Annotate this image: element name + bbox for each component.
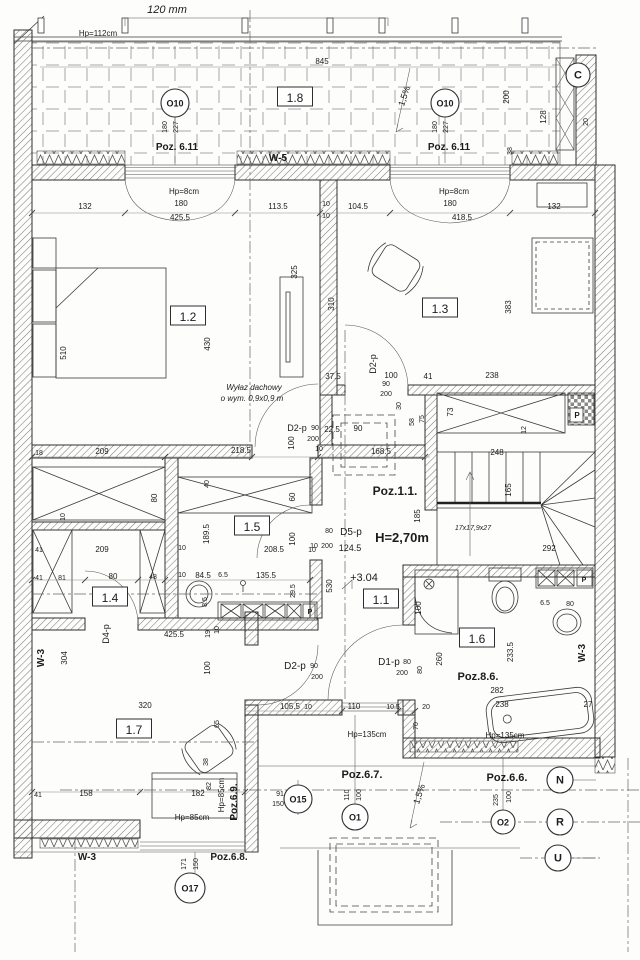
dimension-text: Poz.8.6. bbox=[458, 671, 499, 683]
dimension-text: 200 bbox=[311, 674, 323, 681]
dimension-text: W-3 bbox=[577, 644, 588, 663]
dimension-text: 150 bbox=[193, 858, 200, 870]
bed-room-1-2 bbox=[56, 268, 166, 378]
dimension-text: 845 bbox=[315, 57, 329, 66]
chair-room-1-7 bbox=[177, 719, 240, 778]
dimension-text: P bbox=[574, 411, 580, 420]
dimension-text: 20 bbox=[422, 704, 430, 711]
dimension-text: 100 bbox=[288, 532, 297, 546]
dimension-text: 90 bbox=[382, 381, 390, 388]
dimension-text: 29.5 bbox=[290, 584, 297, 598]
dimension-text: 100 bbox=[384, 371, 398, 380]
dimension-text: P bbox=[582, 577, 587, 584]
dimension-text: H=2,70m bbox=[375, 530, 429, 545]
dimension-text: 27 bbox=[584, 700, 593, 709]
axis-mark-n-label: N bbox=[556, 775, 564, 787]
dimension-text: 100 bbox=[356, 789, 363, 801]
dimension-text: 41 bbox=[35, 575, 43, 582]
dimension-text: 180 bbox=[443, 199, 457, 208]
dimension-text: 19 bbox=[205, 630, 212, 638]
dimension-text: 208.5 bbox=[264, 545, 285, 554]
dimension-text: Poz.6.9. bbox=[229, 783, 240, 820]
dimension-text: Poz.6.6. bbox=[487, 772, 528, 784]
dimension-text: Hp=8cm bbox=[439, 187, 469, 196]
dimension-text: 135.5 bbox=[256, 571, 277, 580]
dimension-text: 310 bbox=[327, 297, 336, 311]
dimension-text: 100 bbox=[203, 661, 212, 675]
dimension-text: 81 bbox=[58, 575, 66, 582]
window-mark-o10-left-label: O10 bbox=[166, 99, 183, 109]
dimension-text: 80 bbox=[325, 528, 333, 535]
dimension-text: 304 bbox=[60, 651, 69, 665]
dimension-text: 105.5 bbox=[280, 702, 301, 711]
dimension-text: W-5 bbox=[269, 153, 288, 164]
dimension-text: 110 bbox=[348, 702, 361, 711]
dimension-text: 17x17,9x27 bbox=[455, 525, 492, 532]
dimension-text: 180 bbox=[174, 199, 188, 208]
dimension-text: 1,5% bbox=[411, 783, 427, 806]
dimension-text: W-3 bbox=[78, 852, 97, 863]
dimension-text: 189.5 bbox=[202, 523, 211, 544]
dimension-text: 10.5 bbox=[386, 704, 400, 711]
dimension-text: 58 bbox=[409, 418, 416, 426]
dimension-text: 325 bbox=[290, 265, 299, 279]
dimension-text: 75 bbox=[419, 415, 426, 423]
dimension-text: 12 bbox=[521, 426, 528, 434]
dimension-text: 425.5 bbox=[164, 630, 185, 639]
room-number-1.8: 1.8 bbox=[287, 91, 304, 105]
dimension-text: D2-p bbox=[284, 661, 306, 672]
dimension-text: 124.5 bbox=[339, 543, 362, 553]
dimension-text: 132 bbox=[547, 202, 561, 211]
dimension-text: P bbox=[308, 609, 313, 616]
dimension-text: 80 bbox=[417, 666, 424, 674]
dimension-text: 40 bbox=[204, 480, 211, 488]
dimension-text: Hp=112cm bbox=[79, 29, 118, 38]
axis-mark-r-label: R bbox=[556, 817, 564, 829]
dimension-text: 100 bbox=[287, 436, 296, 450]
dimension-text: 10 bbox=[178, 572, 186, 579]
dimension-text: 510 bbox=[59, 346, 68, 360]
dimension-text: 320 bbox=[138, 701, 152, 710]
dimension-text: Hp=85cm bbox=[175, 813, 210, 822]
room-number-1.5: 1.5 bbox=[244, 520, 261, 534]
dimension-text: 282 bbox=[490, 686, 504, 695]
dimension-text: 10 bbox=[178, 545, 186, 552]
bed-room-1-3 bbox=[532, 238, 593, 313]
dimension-text: 6.5 bbox=[218, 572, 228, 579]
dimension-text: 180 bbox=[162, 121, 169, 133]
dimension-text: D4-p bbox=[101, 624, 111, 644]
dimension-text: 10 bbox=[322, 201, 330, 208]
dimension-text: 185 bbox=[413, 509, 422, 523]
dimension-text: 100 bbox=[414, 601, 423, 615]
dimension-text: Hp=135cm bbox=[348, 730, 387, 739]
dimension-text: D2-p bbox=[287, 423, 307, 433]
staircase bbox=[437, 393, 595, 565]
dimension-text: 18 bbox=[35, 450, 43, 457]
dimension-text: +3.04 bbox=[350, 572, 378, 584]
dimension-text: Hp=8cm bbox=[169, 187, 199, 196]
dimension-text: 200 bbox=[380, 391, 392, 398]
dimension-text: 22.5 bbox=[324, 425, 340, 434]
dimension-text: Poz.1.1. bbox=[373, 484, 418, 498]
door-arc-room-1-7 bbox=[258, 645, 318, 705]
dimension-text: 171 bbox=[181, 858, 188, 870]
chair-room-1-3 bbox=[364, 239, 427, 297]
dimension-text: 100 bbox=[506, 791, 513, 803]
dimension-text: 248 bbox=[490, 448, 504, 457]
dimension-text: 90 bbox=[310, 663, 318, 670]
dimension-text: 70 bbox=[413, 722, 420, 730]
dimension-text: 80 bbox=[109, 572, 118, 581]
dimension-text: 73 bbox=[446, 407, 455, 416]
room-number-1.6: 1.6 bbox=[469, 632, 486, 646]
dimension-text: Poz.6.7. bbox=[342, 769, 383, 781]
dimension-text: 209 bbox=[95, 545, 109, 554]
dimension-text: Wyłaz dachowy bbox=[226, 383, 283, 392]
dimension-text: 8.5 bbox=[202, 597, 209, 607]
window-mark-o1-label: O1 bbox=[349, 813, 361, 823]
dimension-text: 132 bbox=[78, 202, 92, 211]
dimension-text: 227 bbox=[443, 121, 450, 133]
dimension-text: 65 bbox=[214, 720, 221, 728]
dimension-text: 182 bbox=[191, 789, 205, 798]
floor-plan: 120 mmHp=112cm8451,5%1802271802272001282… bbox=[0, 0, 640, 960]
dimension-text: o wym. 0,9x0,9 m bbox=[221, 394, 284, 403]
dimension-text: D5-p bbox=[340, 527, 362, 538]
dimension-text: 158 bbox=[79, 789, 93, 798]
dimension-text: 41 bbox=[34, 792, 42, 799]
room-number-1.4: 1.4 bbox=[102, 591, 119, 605]
dimension-text: 128 bbox=[539, 110, 548, 124]
dimension-text: 10 bbox=[214, 626, 221, 634]
dimension-text: Poz. 6.11 bbox=[428, 142, 471, 153]
dimension-text: Hp=135cm bbox=[486, 731, 525, 740]
dimension-text: Poz. 6.11 bbox=[156, 142, 199, 153]
dimension-text: 60 bbox=[288, 492, 297, 501]
laundry-counter bbox=[218, 602, 317, 620]
dimension-text: 233.5 bbox=[506, 641, 515, 662]
dimension-text: 91 bbox=[276, 791, 284, 798]
dimension-text: Poz.6.8. bbox=[210, 852, 247, 863]
dimension-text: 200 bbox=[307, 436, 319, 443]
dimension-text: 120 mm bbox=[147, 4, 187, 16]
dimension-text: 430 bbox=[203, 337, 212, 351]
dimension-text: 10 bbox=[315, 446, 323, 453]
dimension-text: 82 bbox=[206, 782, 213, 790]
dimension-text: 110 bbox=[344, 789, 351, 800]
dimension-text: W-3 bbox=[36, 649, 47, 668]
dimension-text: 41 bbox=[424, 372, 433, 381]
room-number-1.3: 1.3 bbox=[432, 302, 449, 316]
window-mark-o2-label: O2 bbox=[497, 818, 509, 828]
dimension-text: D1-p bbox=[378, 657, 400, 668]
dimension-text: 10 bbox=[322, 213, 330, 220]
dimension-text: 84.5 bbox=[195, 571, 211, 580]
floor-plan-canvas: 120 mmHp=112cm8451,5%1802271802272001282… bbox=[0, 0, 640, 960]
dimension-text: 227 bbox=[173, 121, 180, 133]
dimension-text: 6.5 bbox=[540, 600, 550, 607]
dimension-text: 104.5 bbox=[348, 202, 369, 211]
dimension-text: 238 bbox=[485, 371, 499, 380]
dimension-text: 38 bbox=[203, 758, 210, 766]
top-dim-bracket bbox=[125, 18, 388, 26]
dimension-text: 80 bbox=[566, 601, 574, 608]
dimension-text: 20 bbox=[583, 118, 590, 126]
dimension-text: 200 bbox=[502, 90, 511, 104]
dimension-text: 383 bbox=[504, 300, 513, 314]
dimension-text: 30 bbox=[396, 402, 403, 410]
room-number-1.7: 1.7 bbox=[126, 723, 143, 737]
door-swings bbox=[85, 325, 408, 705]
dimension-text: 200 bbox=[321, 543, 333, 550]
dimension-text: 41 bbox=[35, 547, 43, 554]
dimension-text: 200 bbox=[396, 670, 408, 677]
dimension-text: 238 bbox=[495, 700, 509, 709]
dimension-text: 150 bbox=[272, 801, 284, 808]
room-number-1.2: 1.2 bbox=[180, 310, 197, 324]
dimension-text: D2-p bbox=[368, 354, 378, 374]
dimension-text: 90 bbox=[311, 425, 319, 432]
window-mark-o15-label: O15 bbox=[289, 795, 306, 805]
dimension-text: 10 bbox=[304, 704, 312, 711]
dimension-text: 168.5 bbox=[371, 447, 392, 456]
dimension-text: 10 bbox=[310, 543, 318, 550]
dimension-text: 425.5 bbox=[170, 213, 191, 222]
dimension-text: 292 bbox=[542, 544, 556, 553]
window-mark-o10-right-label: O10 bbox=[436, 99, 453, 109]
dimension-text: 80 bbox=[403, 659, 411, 666]
dimension-text: 38 bbox=[507, 147, 514, 155]
dimension-text: 48 bbox=[149, 574, 157, 581]
window-mark-o17-label: O17 bbox=[181, 884, 198, 894]
dimension-text: 180 bbox=[432, 121, 439, 133]
room-number-1.1: 1.1 bbox=[373, 593, 390, 607]
dimension-text: 10 bbox=[60, 513, 67, 521]
dimension-text: 80 bbox=[150, 493, 159, 502]
dimension-text: 113.5 bbox=[268, 202, 288, 211]
axis-mark-c-label: C bbox=[574, 70, 582, 82]
dimension-text: Hp=85cm bbox=[217, 777, 226, 812]
dimension-text: 530 bbox=[325, 579, 334, 593]
dimension-text: 418.5 bbox=[452, 213, 473, 222]
dimension-text: 90 bbox=[354, 424, 363, 433]
dimension-text: 235 bbox=[493, 794, 500, 806]
dimension-text: 218.5 bbox=[231, 446, 252, 455]
dimension-text: 260 bbox=[435, 652, 444, 666]
dimension-text: 209 bbox=[95, 447, 109, 456]
dimension-text: 165 bbox=[504, 483, 513, 497]
axis-mark-u-label: U bbox=[554, 853, 562, 865]
dimension-text: 37.5 bbox=[325, 372, 341, 381]
